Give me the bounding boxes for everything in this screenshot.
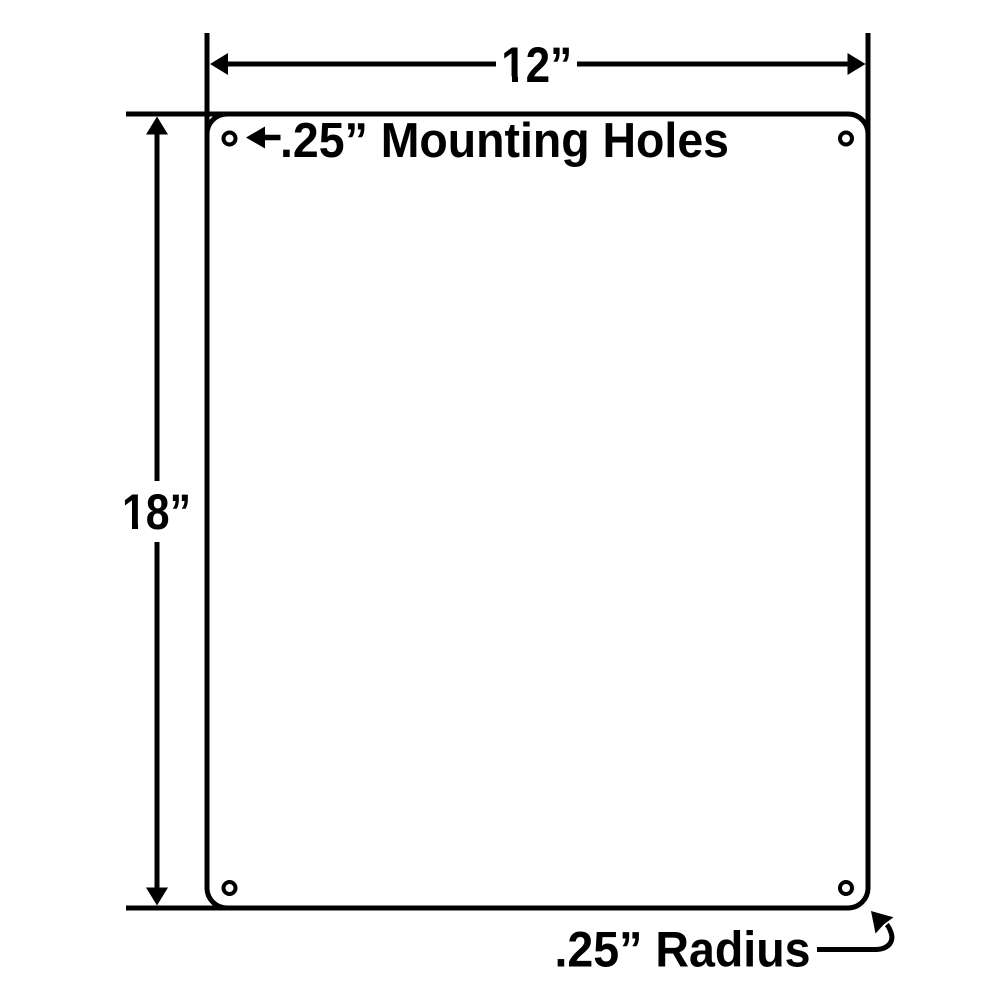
svg-text:.25” Mounting Holes: .25” Mounting Holes xyxy=(280,114,729,168)
svg-text:.25” Radius: .25” Radius xyxy=(555,922,811,978)
svg-text:18”: 18” xyxy=(122,484,191,540)
svg-text:12”: 12” xyxy=(501,37,572,93)
